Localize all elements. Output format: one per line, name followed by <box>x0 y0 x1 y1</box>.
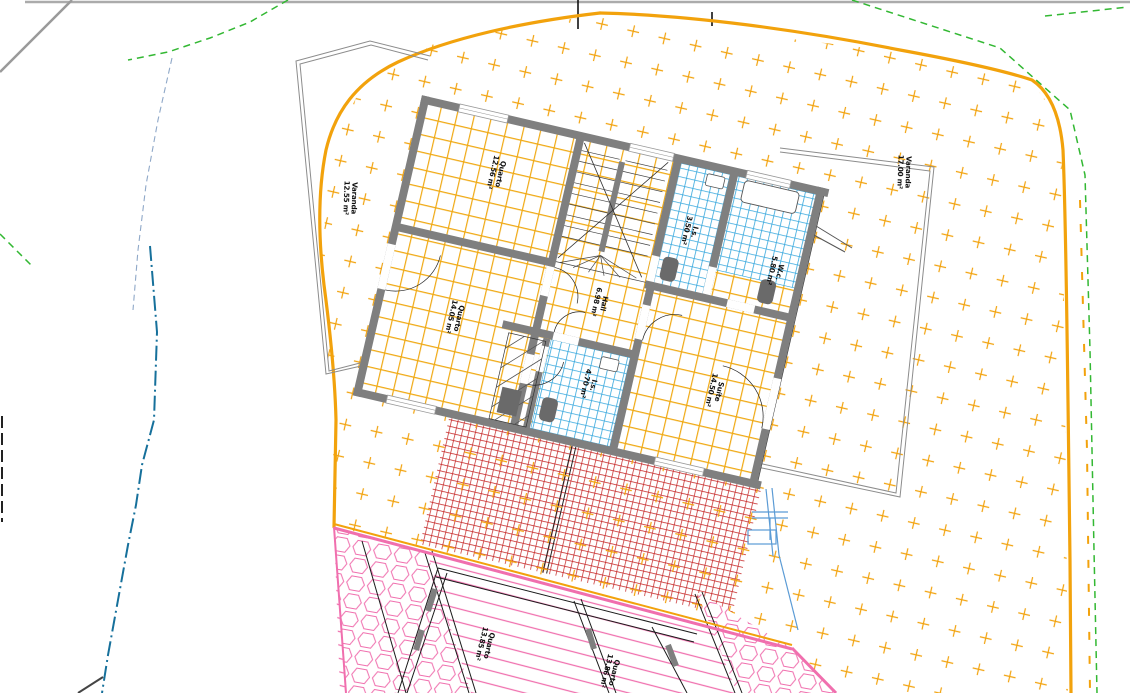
room-label-varanda-right: Varanda 17.00 m² <box>895 155 913 190</box>
boundary-green-topright <box>1045 7 1128 16</box>
room-label-varanda-left: Varanda 12.55 m² <box>341 181 359 216</box>
boundary-green-topleft <box>128 0 288 60</box>
svg-text:12.55 m²: 12.55 m² <box>341 181 351 216</box>
contour-teal-dashdot <box>102 246 157 693</box>
boundary-green-left <box>0 234 32 266</box>
road-edge-diagonal <box>0 0 72 72</box>
edge-mark-bottomleft <box>78 677 103 693</box>
svg-text:17.00 m²: 17.00 m² <box>895 155 905 190</box>
floor-plan-canvas[interactable]: Quarto 13.85 m² Quarto 13.86 m² Varanda … <box>0 0 1130 693</box>
